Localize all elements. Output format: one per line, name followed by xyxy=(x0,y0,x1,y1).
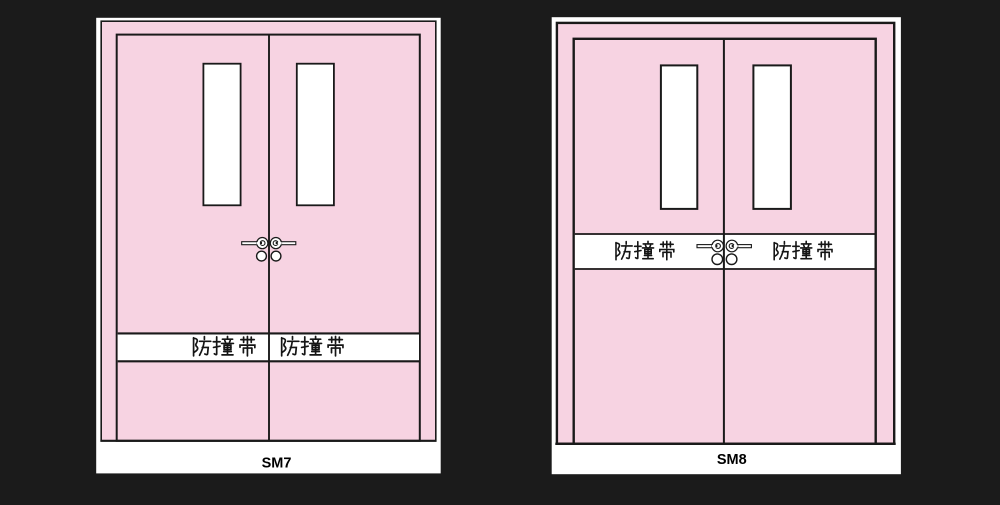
svg-text:SM8: SM8 xyxy=(717,452,747,468)
svg-text:SM7: SM7 xyxy=(262,456,292,472)
